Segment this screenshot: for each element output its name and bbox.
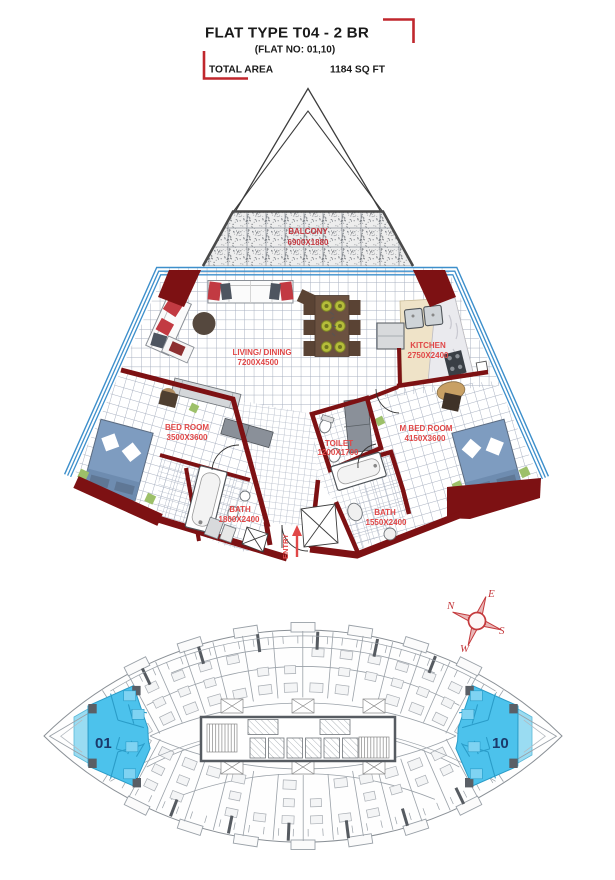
svg-text:1800X2400: 1800X2400: [219, 515, 260, 524]
svg-text:1550X2400: 1550X2400: [366, 518, 407, 527]
svg-text:TOTAL AREA: TOTAL AREA: [209, 65, 274, 76]
svg-text:KITCHEN: KITCHEN: [410, 341, 446, 350]
svg-text:E: E: [487, 588, 495, 600]
svg-text:1184 SQ FT: 1184 SQ FT: [330, 65, 386, 76]
svg-text:LIVING/ DINING: LIVING/ DINING: [232, 348, 291, 357]
svg-text:BATH: BATH: [374, 508, 396, 517]
svg-text:7200X4500: 7200X4500: [238, 358, 279, 367]
svg-text:4150X3600: 4150X3600: [405, 434, 446, 443]
svg-text:S: S: [499, 625, 505, 637]
svg-text:BED ROOM: BED ROOM: [165, 423, 209, 432]
svg-text:3500X3600: 3500X3600: [167, 433, 208, 442]
svg-text:TOILET: TOILET: [325, 439, 353, 448]
svg-text:1200X1700: 1200X1700: [318, 448, 359, 457]
svg-text:M BED ROOM: M BED ROOM: [400, 424, 453, 433]
svg-text:01: 01: [95, 735, 112, 752]
svg-text:FLAT TYPE T04 - 2 BR: FLAT TYPE T04 - 2 BR: [205, 25, 369, 42]
svg-text:ENTRY: ENTRY: [281, 534, 290, 559]
svg-text:(FLAT NO: 01,10): (FLAT NO: 01,10): [255, 45, 335, 56]
svg-text:2750X2400: 2750X2400: [408, 351, 449, 360]
svg-text:W: W: [460, 643, 470, 655]
svg-text:N: N: [446, 600, 455, 612]
svg-text:10: 10: [492, 735, 509, 752]
svg-text:6900X1880: 6900X1880: [288, 238, 329, 247]
svg-text:BATH: BATH: [229, 505, 251, 514]
svg-text:BALCONY: BALCONY: [288, 227, 328, 236]
